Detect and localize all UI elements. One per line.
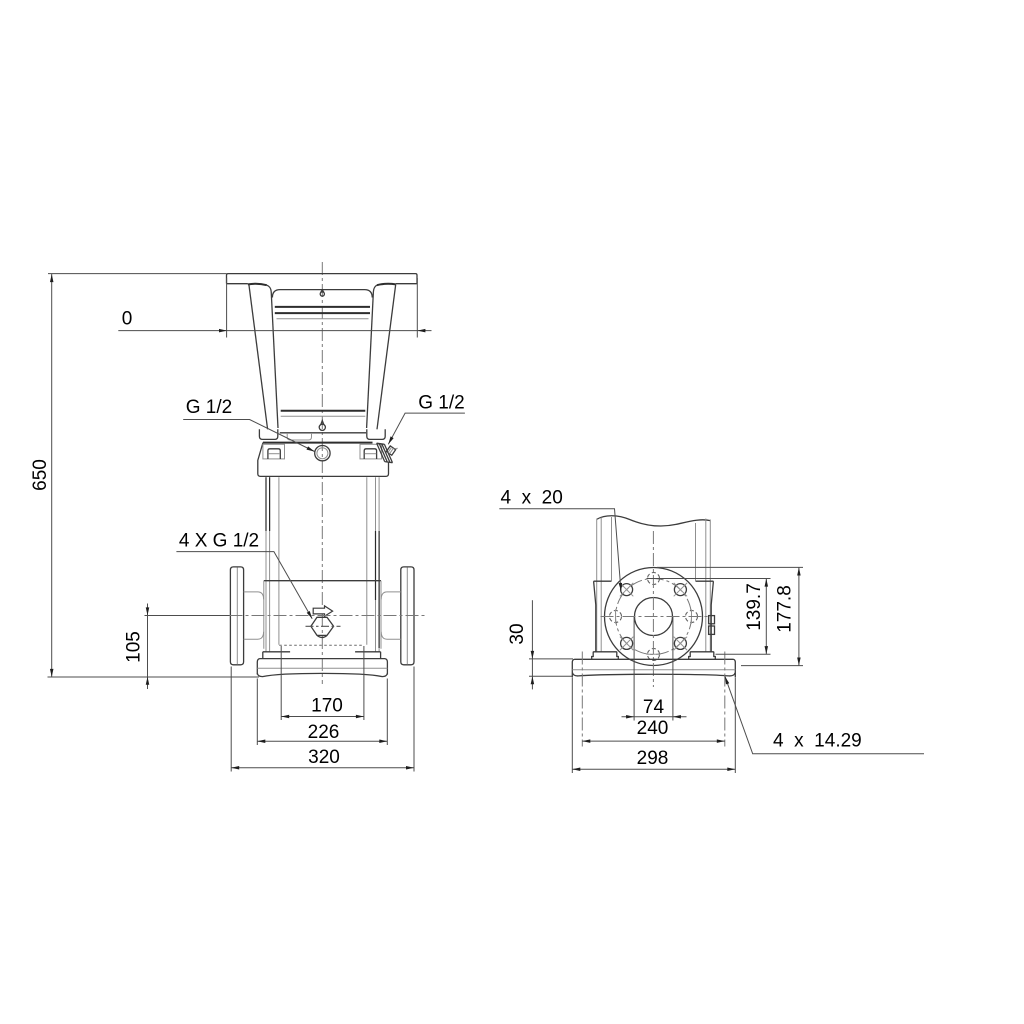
- svg-text:170: 170: [311, 695, 343, 716]
- svg-text:G 1/2: G 1/2: [418, 392, 464, 413]
- svg-text:240: 240: [637, 718, 669, 739]
- svg-text:226: 226: [308, 722, 340, 743]
- svg-text:74: 74: [643, 697, 665, 718]
- svg-text:G 1/2: G 1/2: [186, 397, 232, 418]
- svg-text:650: 650: [30, 459, 51, 491]
- svg-text:177.8: 177.8: [774, 585, 795, 633]
- svg-text:320: 320: [308, 747, 340, 768]
- svg-text:139.7: 139.7: [744, 583, 765, 631]
- svg-text:298: 298: [637, 748, 669, 769]
- svg-text:4 x 14.29: 4 x 14.29: [773, 731, 862, 752]
- svg-text:105: 105: [123, 631, 144, 663]
- svg-text:4 X G 1/2: 4 X G 1/2: [179, 530, 259, 551]
- svg-text:0: 0: [122, 308, 133, 329]
- svg-text:4 x 20: 4 x 20: [501, 488, 563, 509]
- svg-text:30: 30: [507, 623, 528, 644]
